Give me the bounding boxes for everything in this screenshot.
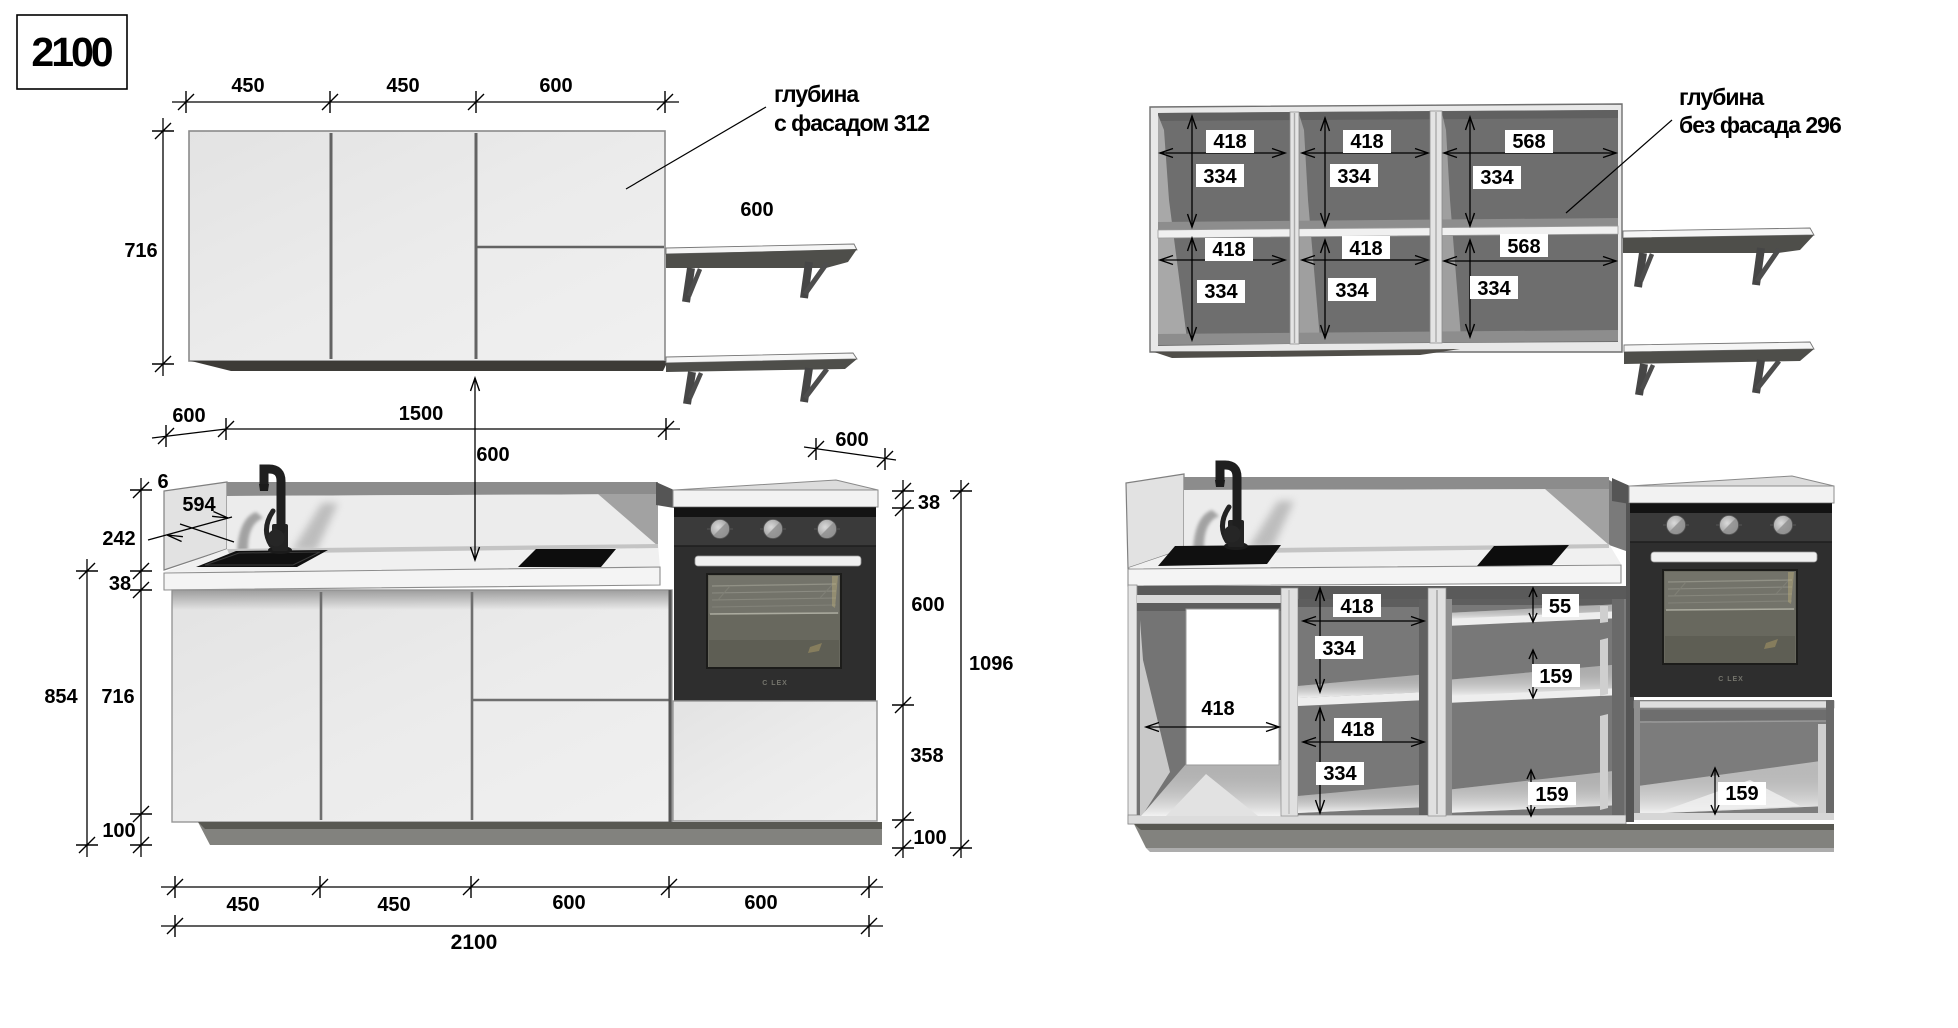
svg-text:418: 418 — [1349, 238, 1382, 260]
svg-text:854: 854 — [44, 686, 78, 708]
svg-text:600: 600 — [476, 444, 509, 466]
svg-text:159: 159 — [1535, 784, 1568, 806]
svg-text:450: 450 — [377, 894, 410, 916]
svg-text:100: 100 — [102, 820, 135, 842]
svg-text:2100: 2100 — [31, 29, 112, 75]
svg-text:418: 418 — [1341, 719, 1374, 741]
svg-text:594: 594 — [182, 494, 216, 516]
svg-text:568: 568 — [1512, 131, 1545, 153]
svg-text:334: 334 — [1337, 166, 1371, 188]
svg-text:334: 334 — [1203, 166, 1237, 188]
svg-text:6: 6 — [157, 471, 168, 493]
svg-text:418: 418 — [1212, 239, 1245, 261]
svg-text:с фасадом 312: с фасадом 312 — [774, 110, 929, 136]
svg-text:418: 418 — [1340, 596, 1373, 618]
svg-text:600: 600 — [539, 75, 572, 97]
svg-text:334: 334 — [1323, 763, 1357, 785]
svg-text:159: 159 — [1539, 666, 1572, 688]
svg-text:159: 159 — [1725, 783, 1758, 805]
svg-text:334: 334 — [1322, 638, 1356, 660]
svg-text:418: 418 — [1350, 131, 1383, 153]
svg-text:450: 450 — [386, 75, 419, 97]
svg-text:1500: 1500 — [399, 403, 444, 425]
svg-text:568: 568 — [1507, 236, 1540, 258]
svg-text:242: 242 — [102, 528, 135, 550]
svg-text:450: 450 — [231, 75, 264, 97]
svg-text:600: 600 — [552, 892, 585, 914]
svg-text:716: 716 — [124, 240, 157, 262]
svg-text:600: 600 — [911, 594, 944, 616]
svg-text:38: 38 — [109, 573, 131, 595]
svg-text:600: 600 — [744, 892, 777, 914]
svg-text:600: 600 — [835, 429, 868, 451]
svg-text:глубина: глубина — [774, 81, 859, 107]
svg-text:глубина: глубина — [1679, 84, 1764, 110]
svg-text:358: 358 — [910, 745, 943, 767]
svg-text:334: 334 — [1204, 281, 1238, 303]
svg-text:38: 38 — [918, 492, 940, 514]
svg-text:716: 716 — [101, 686, 134, 708]
svg-text:600: 600 — [740, 199, 773, 221]
svg-text:1096: 1096 — [969, 653, 1014, 675]
svg-text:418: 418 — [1201, 698, 1234, 720]
svg-text:418: 418 — [1213, 131, 1246, 153]
svg-text:334: 334 — [1477, 278, 1511, 300]
svg-text:600: 600 — [172, 405, 205, 427]
svg-text:100: 100 — [913, 827, 946, 849]
svg-text:2100: 2100 — [451, 931, 498, 954]
svg-text:334: 334 — [1335, 280, 1369, 302]
svg-text:55: 55 — [1549, 596, 1571, 618]
svg-text:334: 334 — [1480, 167, 1514, 189]
svg-text:без фасада 296: без фасада 296 — [1679, 112, 1841, 138]
svg-text:450: 450 — [226, 894, 259, 916]
